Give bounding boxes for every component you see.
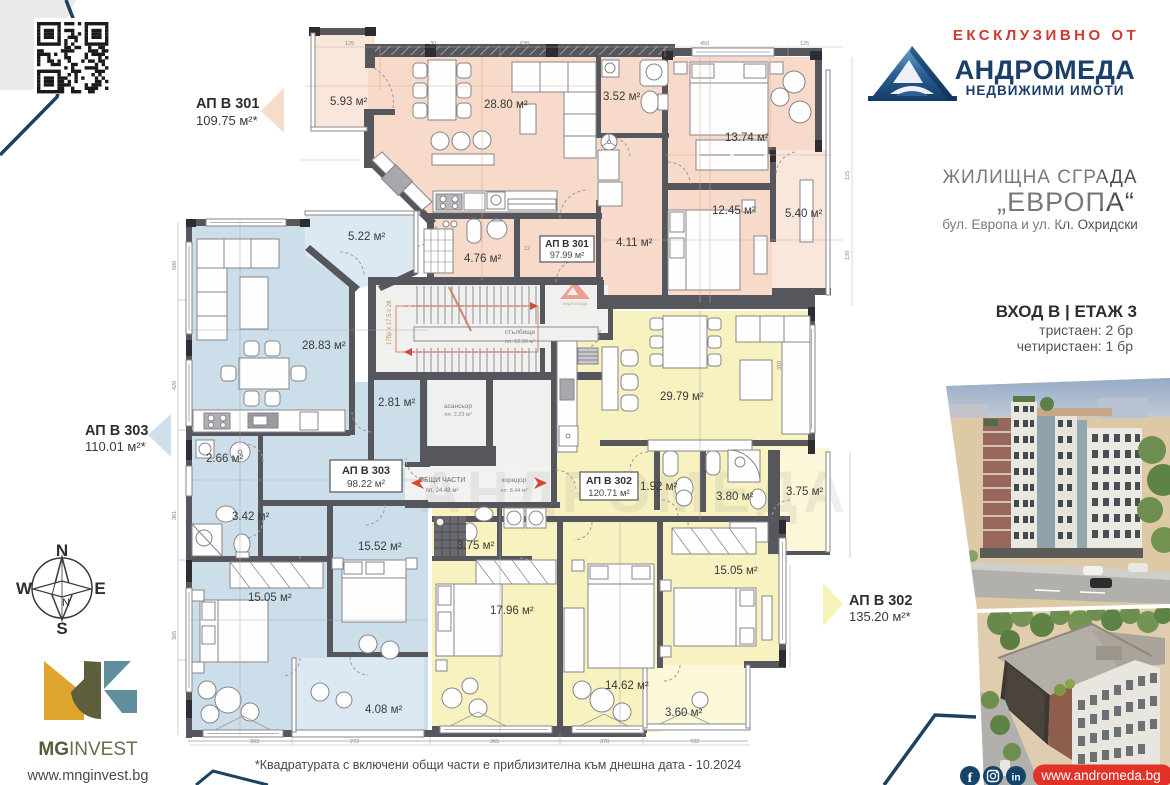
svg-text:30: 30	[430, 41, 436, 47]
svg-text:4.11 м²: 4.11 м²	[616, 237, 653, 249]
svg-text:420: 420	[172, 381, 178, 390]
svg-text:5.22 м²: 5.22 м²	[348, 231, 385, 243]
svg-text:4.76 м²: 4.76 м²	[464, 253, 501, 265]
svg-text:303: 303	[250, 739, 259, 745]
svg-text:АНДРОМЕДА: АНДРОМЕДА	[955, 55, 1136, 85]
svg-text:29.79 м²: 29.79 м²	[660, 391, 704, 403]
svg-text:пл. 8.44 м²: пл. 8.44 м²	[500, 488, 527, 494]
svg-text:305: 305	[172, 631, 178, 640]
svg-text:98.22 м²: 98.22 м²	[347, 479, 386, 490]
svg-text:стълбище: стълбище	[505, 328, 536, 336]
svg-text:N: N	[56, 541, 68, 560]
svg-text:*Квадратурата с включени общи: *Квадратурата с включени общи части е пр…	[255, 758, 741, 772]
svg-text:коридор: коридор	[502, 477, 527, 484]
svg-text:310: 310	[777, 361, 783, 370]
svg-text:2.66 м²: 2.66 м²	[206, 453, 243, 465]
svg-text:N: N	[62, 597, 70, 609]
svg-text:4.08 м²: 4.08 м²	[365, 704, 402, 716]
svg-text:17.96 м²: 17.96 м²	[490, 605, 534, 617]
svg-text:3.42 м²: 3.42 м²	[232, 511, 269, 523]
svg-text:АП В 303: АП В 303	[85, 423, 148, 439]
svg-text:ЕКСКЛУЗИВНО ОТ: ЕКСКЛУЗИВНО ОТ	[953, 27, 1139, 44]
svg-text:17бр х 17.5 х 28: 17бр х 17.5 х 28	[387, 300, 393, 345]
svg-text:АНДРОМЕДА: АНДРОМЕДА	[562, 301, 588, 306]
svg-text:135.20 м²*: 135.20 м²*	[849, 609, 911, 624]
svg-text:15.05 м²: 15.05 м²	[714, 565, 758, 577]
svg-text:28.83 м²: 28.83 м²	[302, 340, 346, 352]
svg-text:3.75 м²: 3.75 м²	[786, 486, 823, 498]
svg-text:2.81 м²: 2.81 м²	[378, 397, 415, 409]
svg-text:четиристаен: 1 бр: четиристаен: 1 бр	[1017, 338, 1133, 354]
svg-text:www.mnginvest.bg: www.mnginvest.bg	[27, 768, 149, 784]
svg-text:3.52 м²: 3.52 м²	[603, 91, 640, 103]
svg-text:97.99 м²: 97.99 м²	[550, 250, 584, 260]
svg-text:450: 450	[700, 41, 709, 47]
svg-text:110.01 м²*: 110.01 м²*	[85, 439, 146, 454]
svg-text:3.60 м²: 3.60 м²	[665, 707, 702, 719]
svg-text:E: E	[94, 579, 105, 598]
svg-text:638: 638	[520, 41, 529, 47]
svg-text:361: 361	[172, 511, 178, 520]
svg-text:MGINVEST: MGINVEST	[38, 739, 138, 760]
svg-text:120.71 м²: 120.71 м²	[588, 488, 629, 499]
svg-text:S: S	[56, 619, 67, 638]
svg-text:АП В 301: АП В 301	[545, 239, 589, 250]
svg-text:пл. 24.48 м²: пл. 24.48 м²	[426, 488, 459, 494]
svg-text:АП В 303: АП В 303	[342, 465, 390, 477]
svg-text:12: 12	[524, 246, 530, 252]
svg-text:асансьор: асансьор	[444, 403, 472, 410]
svg-text:13.74 м²: 13.74 м²	[725, 132, 769, 144]
svg-text:www.andromeda.bg: www.andromeda.bg	[1040, 768, 1160, 783]
svg-text:12.45 м²: 12.45 м²	[712, 205, 756, 217]
svg-text:3.75 м²: 3.75 м²	[457, 540, 494, 552]
svg-text:125: 125	[345, 41, 354, 47]
svg-text:15.52 м²: 15.52 м²	[358, 541, 402, 553]
svg-text:3.80 м²: 3.80 м²	[716, 491, 753, 503]
svg-text:14.62 м²: 14.62 м²	[605, 680, 649, 692]
svg-text:365: 365	[490, 739, 499, 745]
svg-text:АП В 302: АП В 302	[586, 475, 632, 487]
svg-text:пл. 2.23 м²: пл. 2.23 м²	[444, 412, 471, 418]
svg-text:5.40 м²: 5.40 м²	[785, 208, 822, 220]
svg-text:272: 272	[350, 739, 359, 745]
svg-text:28.80 м²: 28.80 м²	[484, 99, 528, 111]
svg-text:125: 125	[845, 171, 851, 180]
svg-text:120: 120	[845, 251, 851, 260]
svg-text:5.93 м²: 5.93 м²	[330, 96, 367, 108]
svg-text:f: f	[968, 771, 973, 785]
svg-text:АП В 302: АП В 302	[849, 593, 912, 609]
svg-text:125: 125	[800, 41, 809, 47]
svg-text:370: 370	[600, 739, 609, 745]
svg-text:1.92 м²: 1.92 м²	[640, 481, 677, 493]
svg-text:500: 500	[172, 261, 178, 270]
svg-text:15.05 м²: 15.05 м²	[248, 592, 292, 604]
svg-text:ВХОД В | ЕТАЖ 3: ВХОД В | ЕТАЖ 3	[996, 302, 1137, 321]
svg-text:109.75 м²*: 109.75 м²*	[196, 113, 258, 128]
svg-text:ОБЩИ ЧАСТИ: ОБЩИ ЧАСТИ	[419, 477, 466, 484]
svg-text:АП В 301: АП В 301	[196, 96, 259, 112]
svg-text:W: W	[16, 579, 33, 598]
svg-text:пл. 12.30 м²: пл. 12.30 м²	[505, 339, 535, 345]
svg-text:in: in	[1012, 773, 1021, 784]
svg-text:тристаен: 2 бр: тристаен: 2 бр	[1039, 322, 1133, 338]
svg-text:733: 733	[690, 739, 699, 745]
svg-text:НЕДВИЖИМИ ИМОТИ: НЕДВИЖИМИ ИМОТИ	[966, 83, 1125, 98]
